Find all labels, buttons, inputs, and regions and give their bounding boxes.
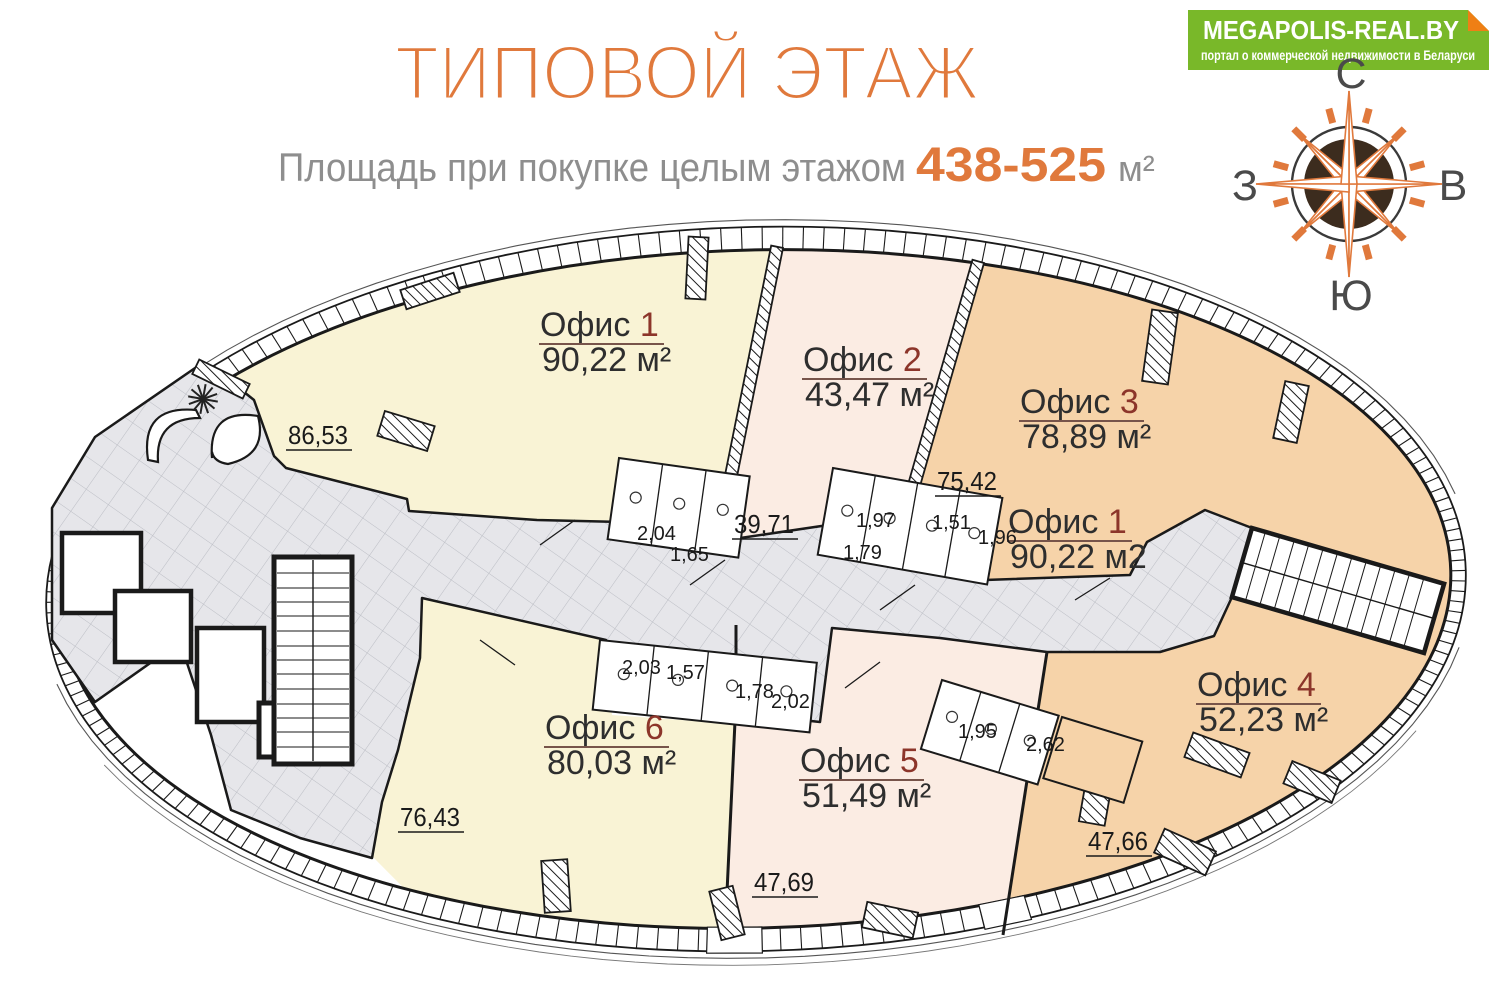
svg-text:С: С	[1335, 50, 1366, 98]
svg-text:Ю: Ю	[1329, 272, 1372, 320]
svg-text:1,57: 1,57	[666, 662, 705, 684]
svg-text:47,66: 47,66	[1088, 826, 1148, 856]
svg-text:1,51: 1,51	[932, 512, 971, 534]
svg-text:2,03: 2,03	[622, 657, 661, 679]
svg-text:1,79: 1,79	[843, 542, 882, 564]
svg-text:1,78: 1,78	[735, 681, 774, 703]
svg-text:80,03 м²: 80,03 м²	[547, 744, 676, 782]
svg-text:86,53: 86,53	[288, 420, 348, 450]
svg-text:75,42: 75,42	[937, 466, 997, 496]
svg-text:Площадь при покупке целым этаж: Площадь при покупке целым этажом	[278, 146, 906, 190]
svg-text:м²: м²	[1118, 148, 1155, 189]
svg-text:2,02: 2,02	[771, 691, 810, 713]
svg-text:1,96: 1,96	[978, 527, 1017, 549]
svg-text:Офис 2: Офис 2	[803, 341, 922, 379]
svg-text:39,71: 39,71	[734, 509, 794, 539]
svg-text:47,69: 47,69	[754, 867, 814, 897]
svg-text:2,62: 2,62	[1026, 734, 1065, 756]
svg-text:90,22 м²: 90,22 м²	[542, 341, 671, 379]
svg-text:Офис 4: Офис 4	[1197, 666, 1316, 704]
svg-text:76,43: 76,43	[400, 802, 460, 832]
svg-text:1,97: 1,97	[856, 510, 895, 532]
svg-text:52,23 м²: 52,23 м²	[1199, 701, 1328, 739]
svg-text:Офис 3: Офис 3	[1020, 383, 1139, 421]
svg-text:1,65: 1,65	[670, 544, 709, 566]
svg-text:Офис 6: Офис 6	[545, 709, 664, 747]
svg-text:ТИПОВОЙ ЭТАЖ: ТИПОВОЙ ЭТАЖ	[395, 30, 979, 116]
svg-text:43,47 м²: 43,47 м²	[805, 376, 934, 414]
svg-text:Офис 1: Офис 1	[540, 306, 659, 344]
svg-text:438-525: 438-525	[916, 139, 1106, 192]
svg-text:З: З	[1232, 162, 1258, 210]
svg-text:В: В	[1439, 162, 1468, 210]
svg-text:Офис 5: Офис 5	[800, 742, 919, 780]
svg-text:2,04: 2,04	[637, 523, 676, 545]
svg-text:MEGAPOLIS-REAL.BY: MEGAPOLIS-REAL.BY	[1203, 15, 1459, 45]
svg-text:90,22 м2: 90,22 м2	[1010, 538, 1147, 576]
svg-text:78,89 м²: 78,89 м²	[1022, 418, 1151, 456]
svg-text:51,49 м²: 51,49 м²	[802, 777, 931, 815]
svg-text:1,95: 1,95	[958, 721, 997, 743]
svg-text:Офис 1: Офис 1	[1008, 503, 1127, 541]
